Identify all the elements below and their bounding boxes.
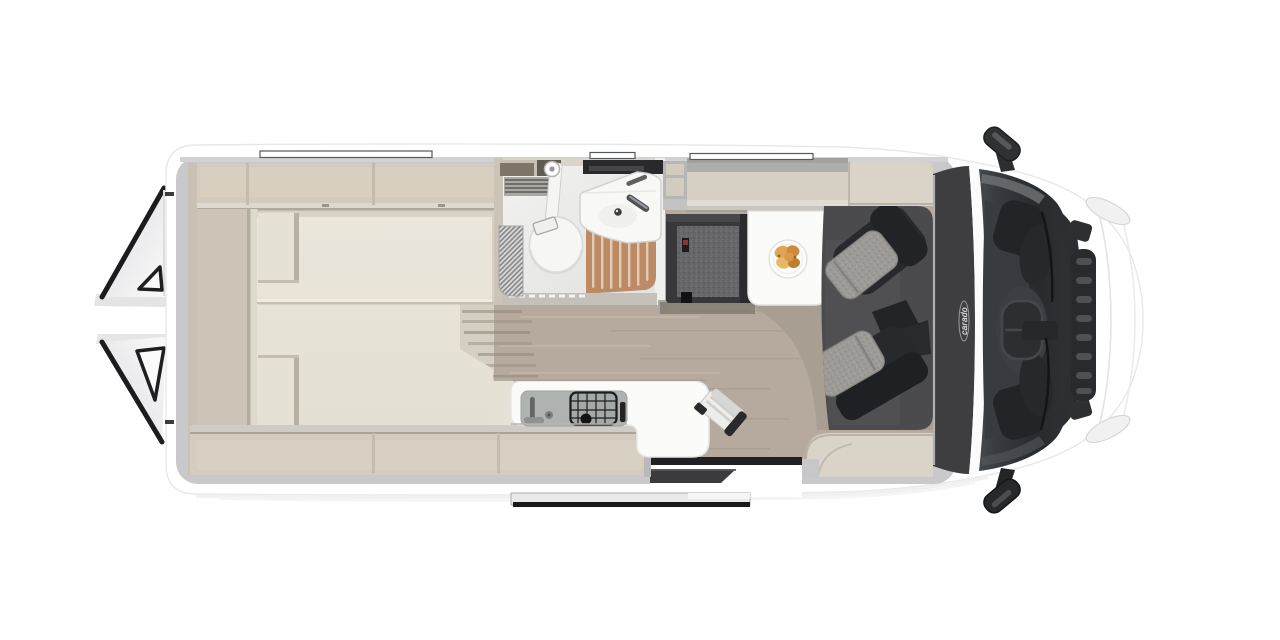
svg-text:carado: carado bbox=[959, 307, 969, 335]
